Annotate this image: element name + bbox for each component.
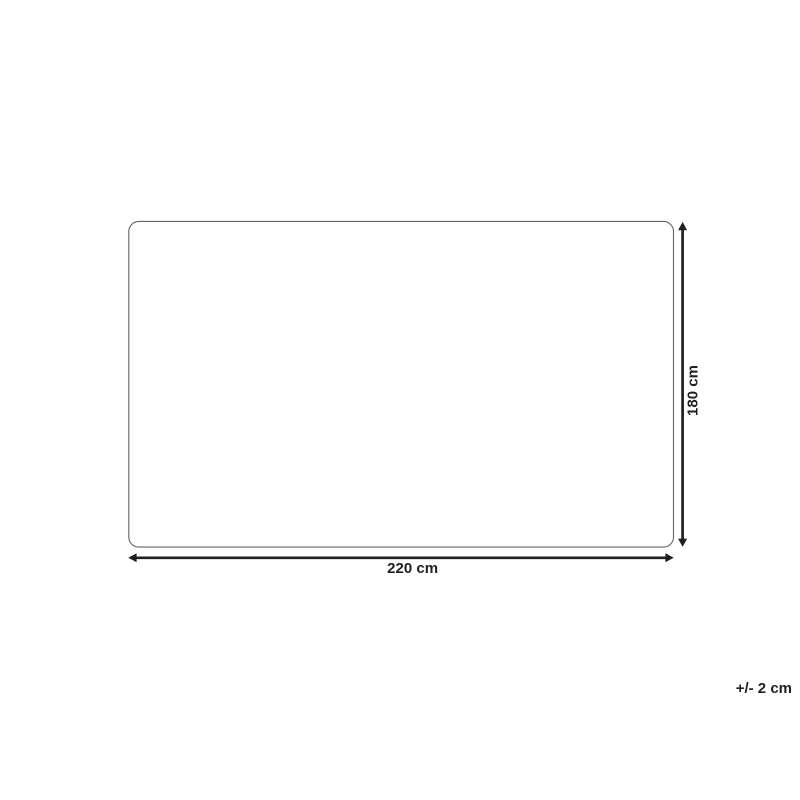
svg-text:180 cm: 180 cm xyxy=(685,365,702,416)
svg-text:+/- 2 cm: +/- 2 cm xyxy=(736,680,792,697)
svg-text:220 cm: 220 cm xyxy=(387,560,438,577)
